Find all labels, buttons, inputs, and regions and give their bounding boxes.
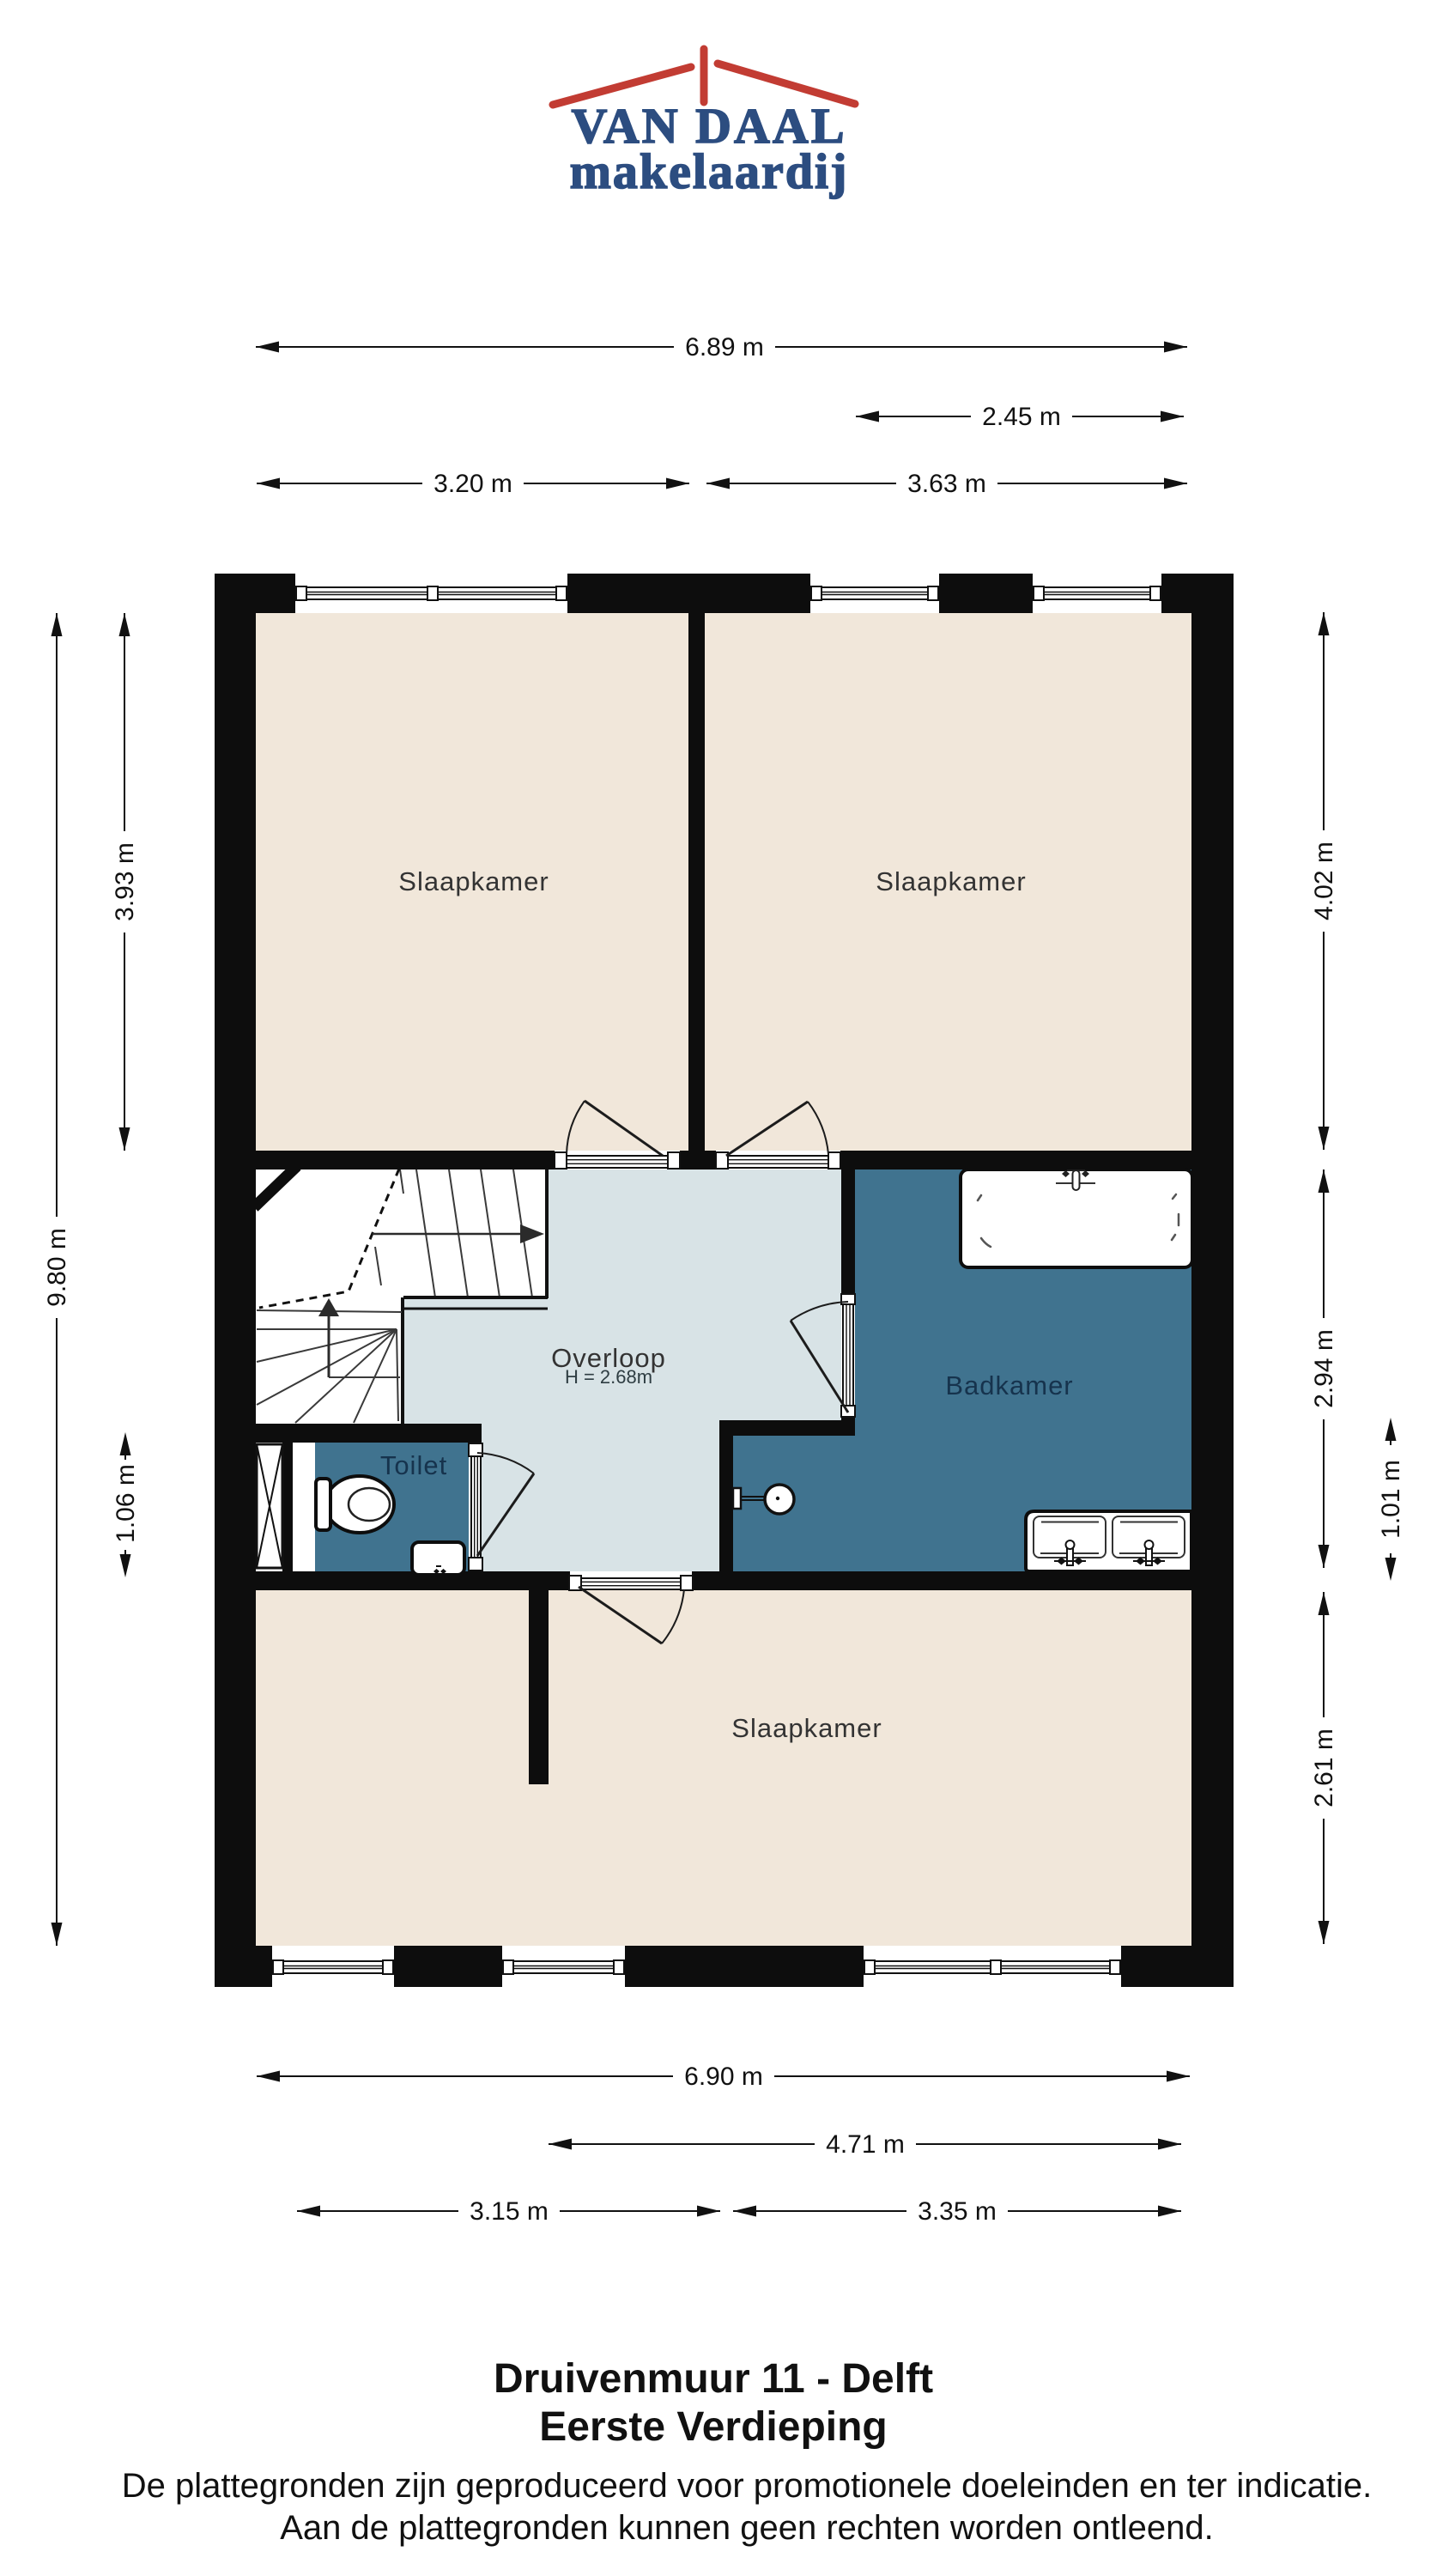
svg-text:1.06 m: 1.06 m xyxy=(112,1464,140,1543)
svg-text:Aan de plattegronden kunnen ge: Aan de plattegronden kunnen geen rechten… xyxy=(280,2509,1214,2547)
svg-text:makelaardij: makelaardij xyxy=(570,143,849,199)
svg-text:H = 2.68m: H = 2.68m xyxy=(565,1366,652,1388)
svg-text:6.90 m: 6.90 m xyxy=(684,2063,763,2091)
svg-text:2.61 m: 2.61 m xyxy=(1310,1728,1338,1807)
svg-text:1.01 m: 1.01 m xyxy=(1377,1460,1405,1539)
svg-text:Slaapkamer: Slaapkamer xyxy=(876,866,1026,896)
svg-text:Eerste Verdieping: Eerste Verdieping xyxy=(539,2404,888,2450)
svg-text:Druivenmuur 11 - Delft: Druivenmuur 11 - Delft xyxy=(494,2356,933,2402)
svg-text:3.15 m: 3.15 m xyxy=(470,2197,549,2226)
svg-text:3.63 m: 3.63 m xyxy=(907,470,986,498)
svg-text:De plattegronden zijn geproduc: De plattegronden zijn geproduceerd voor … xyxy=(122,2467,1373,2505)
svg-text:9.80 m: 9.80 m xyxy=(43,1228,71,1307)
svg-text:3.35 m: 3.35 m xyxy=(918,2197,997,2226)
svg-text:4.71 m: 4.71 m xyxy=(826,2130,905,2159)
svg-text:2.94 m: 2.94 m xyxy=(1310,1329,1338,1408)
svg-text:2.45 m: 2.45 m xyxy=(982,403,1061,431)
svg-text:4.02 m: 4.02 m xyxy=(1310,841,1338,920)
svg-text:Badkamer: Badkamer xyxy=(945,1370,1073,1400)
svg-text:6.89 m: 6.89 m xyxy=(685,333,764,361)
svg-text:3.93 m: 3.93 m xyxy=(111,842,139,921)
svg-text:Slaapkamer: Slaapkamer xyxy=(398,866,549,896)
svg-text:Slaapkamer: Slaapkamer xyxy=(731,1713,882,1743)
svg-text:Toilet: Toilet xyxy=(380,1450,447,1480)
svg-text:3.20 m: 3.20 m xyxy=(433,470,512,498)
